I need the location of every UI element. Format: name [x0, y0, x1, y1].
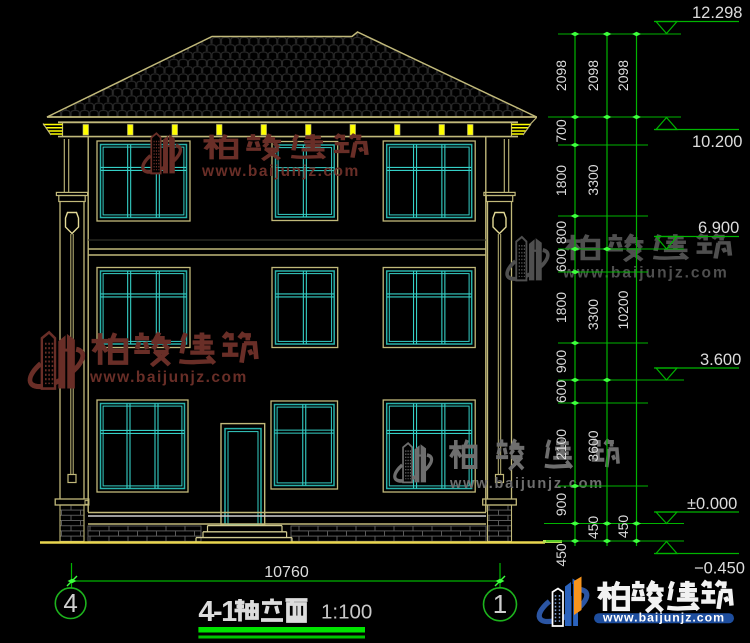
- svg-text:4-1: 4-1: [198, 596, 237, 628]
- svg-text:1: 1: [493, 589, 507, 619]
- svg-text:3.600: 3.600: [700, 351, 741, 369]
- svg-text:600: 600: [553, 249, 569, 273]
- svg-text:2098: 2098: [615, 60, 631, 91]
- svg-text:6.900: 6.900: [698, 219, 739, 237]
- svg-text:900: 900: [553, 350, 569, 374]
- svg-text:www.baijunjz.com: www.baijunjz.com: [449, 476, 604, 492]
- svg-text:2098: 2098: [585, 60, 601, 91]
- svg-text:1800: 1800: [553, 292, 569, 323]
- svg-text:www.baijunjz.com: www.baijunjz.com: [602, 611, 725, 625]
- svg-text:450: 450: [553, 543, 569, 567]
- svg-text:3300: 3300: [585, 299, 601, 330]
- svg-text:3600: 3600: [585, 430, 601, 461]
- svg-text:10760: 10760: [264, 564, 309, 581]
- svg-text:12.298: 12.298: [692, 4, 742, 22]
- svg-text:450: 450: [615, 515, 631, 539]
- svg-text:www.baijunjz.com: www.baijunjz.com: [201, 163, 360, 180]
- svg-text:10200: 10200: [615, 290, 631, 329]
- svg-text:2098: 2098: [553, 60, 569, 91]
- svg-text:700: 700: [553, 119, 569, 143]
- svg-text:1800: 1800: [553, 165, 569, 196]
- svg-text:800: 800: [553, 221, 569, 245]
- svg-text:450: 450: [585, 516, 601, 540]
- svg-text:±0.000: ±0.000: [687, 495, 737, 513]
- svg-text:1:100: 1:100: [321, 601, 372, 624]
- svg-text:600: 600: [553, 380, 569, 404]
- svg-text:www.baijunjz.com: www.baijunjz.com: [562, 265, 729, 282]
- svg-text:900: 900: [553, 493, 569, 517]
- svg-text:3300: 3300: [585, 164, 601, 195]
- svg-text:www.baijunjz.com: www.baijunjz.com: [89, 369, 248, 386]
- svg-text:2100: 2100: [553, 429, 569, 460]
- svg-text:10.200: 10.200: [692, 133, 742, 151]
- svg-text:−0.450: −0.450: [694, 560, 745, 578]
- svg-text:4: 4: [63, 588, 77, 618]
